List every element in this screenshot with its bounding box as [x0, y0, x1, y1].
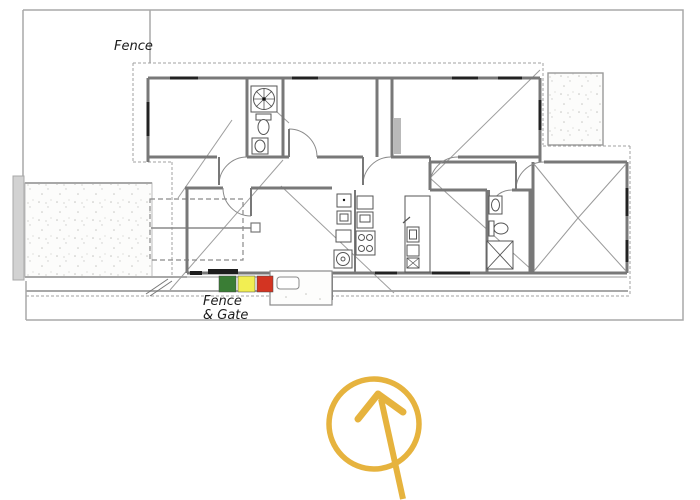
up-arrow-icon-shaft	[381, 399, 403, 499]
marker-green	[219, 276, 236, 292]
marker-yellow	[238, 276, 255, 292]
gate-markers	[219, 276, 273, 292]
fence-gate-label-line2: & Gate	[203, 308, 248, 323]
fence-gate-label-line1: Fence	[203, 294, 242, 309]
fence-label: Fence	[114, 39, 153, 54]
garage-envelope	[534, 164, 626, 271]
annotation-circle	[329, 379, 419, 469]
circled-arrow-annotation	[329, 379, 419, 499]
ensuite-fixtures	[487, 196, 513, 269]
bathroom-fixtures	[251, 86, 277, 154]
robe-panel	[394, 118, 401, 154]
floor-plan-drawing: Fence Fence & Gate	[0, 0, 700, 500]
shower-drain-dot	[262, 97, 266, 101]
porch-step	[277, 277, 299, 289]
driveway-area	[25, 183, 152, 277]
gate-marks	[146, 279, 172, 296]
carport	[150, 199, 260, 260]
porch	[270, 271, 332, 305]
carport-post	[251, 223, 260, 232]
marker-red	[257, 276, 273, 292]
window-strip-2	[208, 269, 238, 274]
floor-plan-page: Fence Fence & Gate	[0, 0, 700, 500]
kitchen-laundry-fixtures	[334, 190, 375, 273]
window-strip-1	[190, 271, 202, 275]
kitchen-island	[403, 196, 430, 272]
courtyard-area	[548, 73, 603, 145]
side-fence-bar	[13, 176, 24, 280]
